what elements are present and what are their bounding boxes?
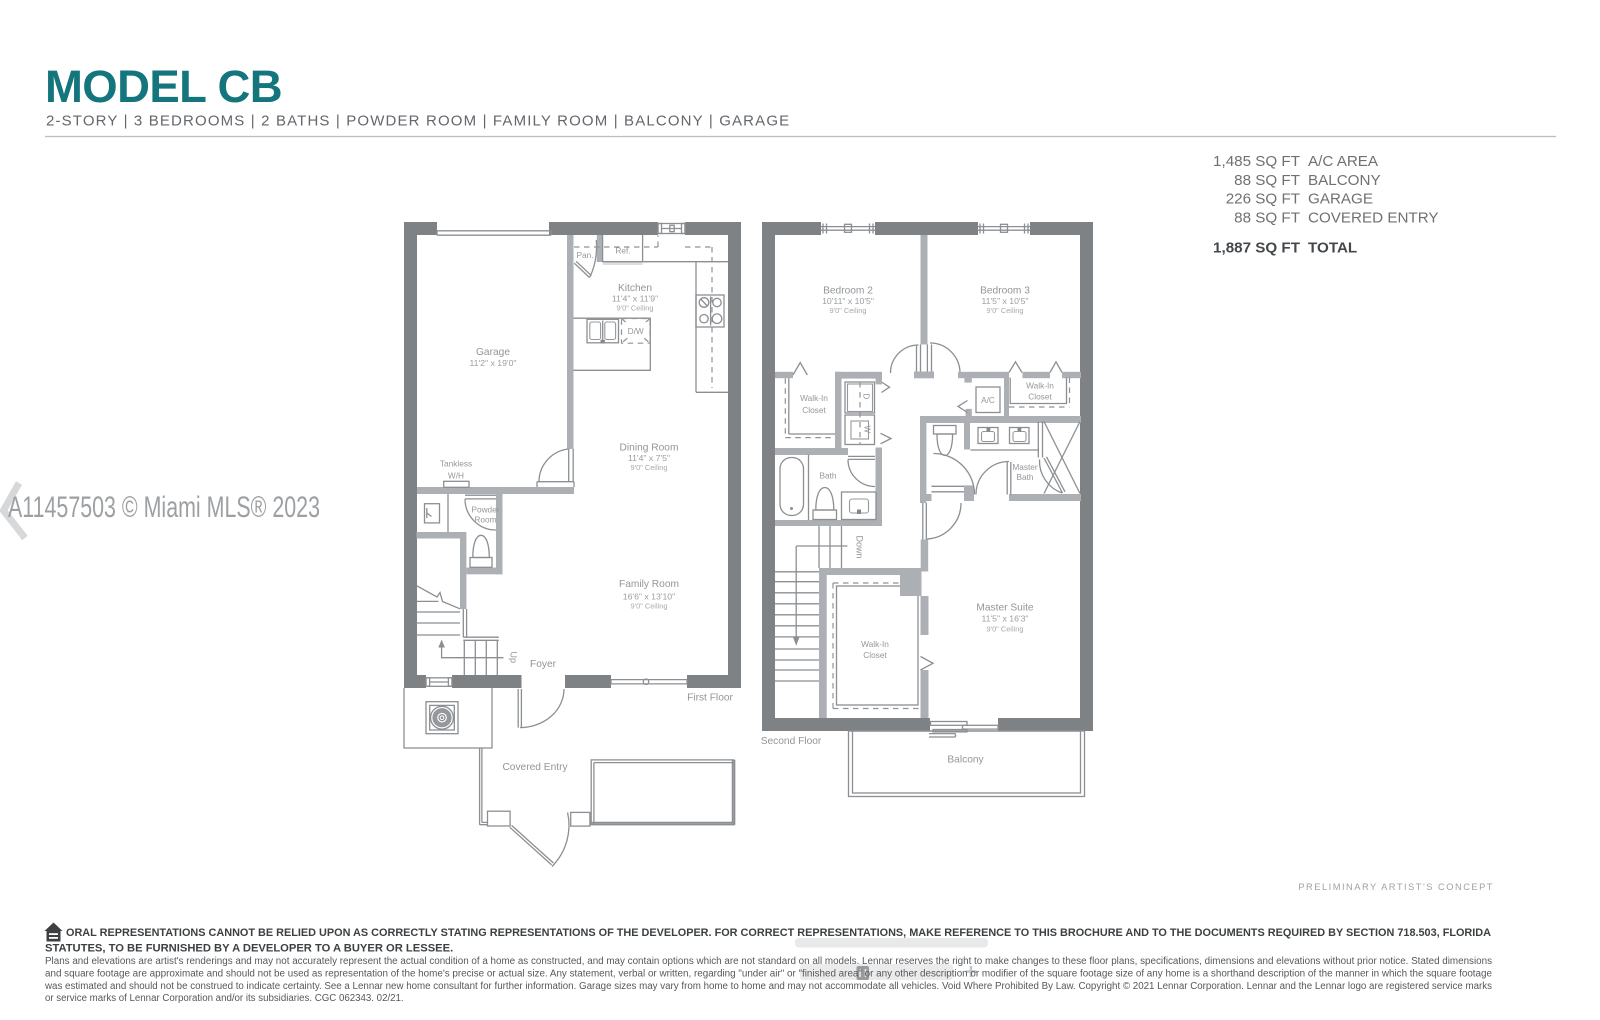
svg-text:Tankless: Tankless <box>440 459 472 469</box>
svg-text:D: D <box>862 394 871 400</box>
svg-text:STATUTES, TO BE FURNISHED BY A: STATUTES, TO BE FURNISHED BY A DEVELOPER… <box>45 942 453 954</box>
svg-text:Master: Master <box>1012 462 1038 472</box>
svg-text:Dining Room: Dining Room <box>620 443 679 454</box>
svg-text:Plans and elevations are artis: Plans and elevations are artist's render… <box>45 956 1492 967</box>
svg-text:9'0" Ceiling: 9'0" Ceiling <box>631 463 668 472</box>
svg-text:Closet: Closet <box>802 405 826 415</box>
svg-text:1,485 SQ FT: 1,485 SQ FT <box>1213 153 1300 170</box>
svg-text:9'0" Ceiling: 9'0" Ceiling <box>617 304 654 313</box>
svg-text:A11457503 © Miami MLS® 2023: A11457503 © Miami MLS® 2023 <box>8 491 320 524</box>
svg-text:First Floor: First Floor <box>687 693 733 704</box>
svg-text:Room: Room <box>474 515 496 525</box>
svg-text:Bedroom 3: Bedroom 3 <box>980 286 1030 297</box>
svg-text:Covered Entry: Covered Entry <box>502 762 568 773</box>
svg-text:Bath: Bath <box>819 471 836 481</box>
svg-text:Powder: Powder <box>471 505 499 515</box>
svg-text:and square footage are approxi: and square footage are approximate and s… <box>45 969 1492 980</box>
svg-text:Balcony: Balcony <box>947 755 984 766</box>
svg-text:88 SQ FT: 88 SQ FT <box>1234 172 1300 189</box>
svg-text:11'2" x 19'0": 11'2" x 19'0" <box>470 358 517 368</box>
svg-text:10'11" x 10'5": 10'11" x 10'5" <box>822 296 874 306</box>
svg-text:16'6" x 13'10": 16'6" x 13'10" <box>623 592 675 602</box>
svg-text:2-STORY | 3 BEDROOMS | 2 BATHS: 2-STORY | 3 BEDROOMS | 2 BATHS | POWDER … <box>46 113 790 130</box>
svg-text:Closet: Closet <box>863 650 887 660</box>
svg-text:PRELIMINARY ARTIST'S CONCEPT: PRELIMINARY ARTIST'S CONCEPT <box>1298 882 1494 892</box>
svg-text:A/C: A/C <box>981 395 995 405</box>
svg-text:9'0" Ceiling: 9'0" Ceiling <box>631 602 668 611</box>
svg-text:9'0" Ceiling: 9'0" Ceiling <box>830 306 867 315</box>
svg-text:Garage: Garage <box>476 347 510 358</box>
svg-text:A/C AREA: A/C AREA <box>1308 153 1379 170</box>
svg-text:was estimated and should not b: was estimated and should not be construe… <box>44 981 1492 992</box>
svg-text:BALCONY: BALCONY <box>1308 172 1381 189</box>
svg-text:Foyer: Foyer <box>530 659 557 670</box>
svg-text:Up: Up <box>509 652 519 664</box>
svg-text:226 SQ FT: 226 SQ FT <box>1226 191 1300 208</box>
svg-text:Family Room: Family Room <box>619 579 679 590</box>
svg-text:GARAGE: GARAGE <box>1308 191 1373 208</box>
svg-text:Master Suite: Master Suite <box>976 603 1034 614</box>
svg-text:11'4" x 7'5": 11'4" x 7'5" <box>628 453 670 463</box>
svg-text:Walk-In: Walk-In <box>800 393 828 403</box>
svg-text:W: W <box>863 426 872 434</box>
svg-text:Kitchen: Kitchen <box>618 283 652 294</box>
svg-text:ORAL REPRESENTATIONS CANNOT BE: ORAL REPRESENTATIONS CANNOT BE RELIED UP… <box>66 927 1491 939</box>
svg-text:D/W: D/W <box>628 326 644 336</box>
svg-text:Walk-In: Walk-In <box>1026 381 1054 391</box>
svg-text:Pan.: Pan. <box>576 250 593 260</box>
svg-text:Walk-In: Walk-In <box>861 639 889 649</box>
svg-text:COVERED ENTRY: COVERED ENTRY <box>1308 209 1439 226</box>
svg-text:Closet: Closet <box>1028 392 1052 402</box>
svg-text:TOTAL: TOTAL <box>1308 240 1357 257</box>
svg-text:11'5" x 16'3": 11'5" x 16'3" <box>982 614 1029 624</box>
svg-text:MODEL CB: MODEL CB <box>45 61 282 112</box>
svg-text:Bedroom 2: Bedroom 2 <box>823 286 873 297</box>
svg-text:Bath: Bath <box>1016 472 1033 482</box>
svg-text:1,887 SQ FT: 1,887 SQ FT <box>1213 240 1301 257</box>
svg-text:11'5" x 10'5": 11'5" x 10'5" <box>982 296 1029 306</box>
svg-text:W/H: W/H <box>448 471 464 481</box>
svg-text:9'0" Ceiling: 9'0" Ceiling <box>987 625 1024 634</box>
svg-text:Down: Down <box>855 536 865 559</box>
svg-text:9'0" Ceiling: 9'0" Ceiling <box>987 306 1024 315</box>
svg-text:Second Floor: Second Floor <box>761 736 822 747</box>
svg-text:11'4" x 11'9": 11'4" x 11'9" <box>612 294 658 304</box>
svg-text:or service marks of Lennar Cor: or service marks of Lennar Corporation a… <box>45 993 404 1004</box>
svg-text:88 SQ FT: 88 SQ FT <box>1234 209 1300 226</box>
